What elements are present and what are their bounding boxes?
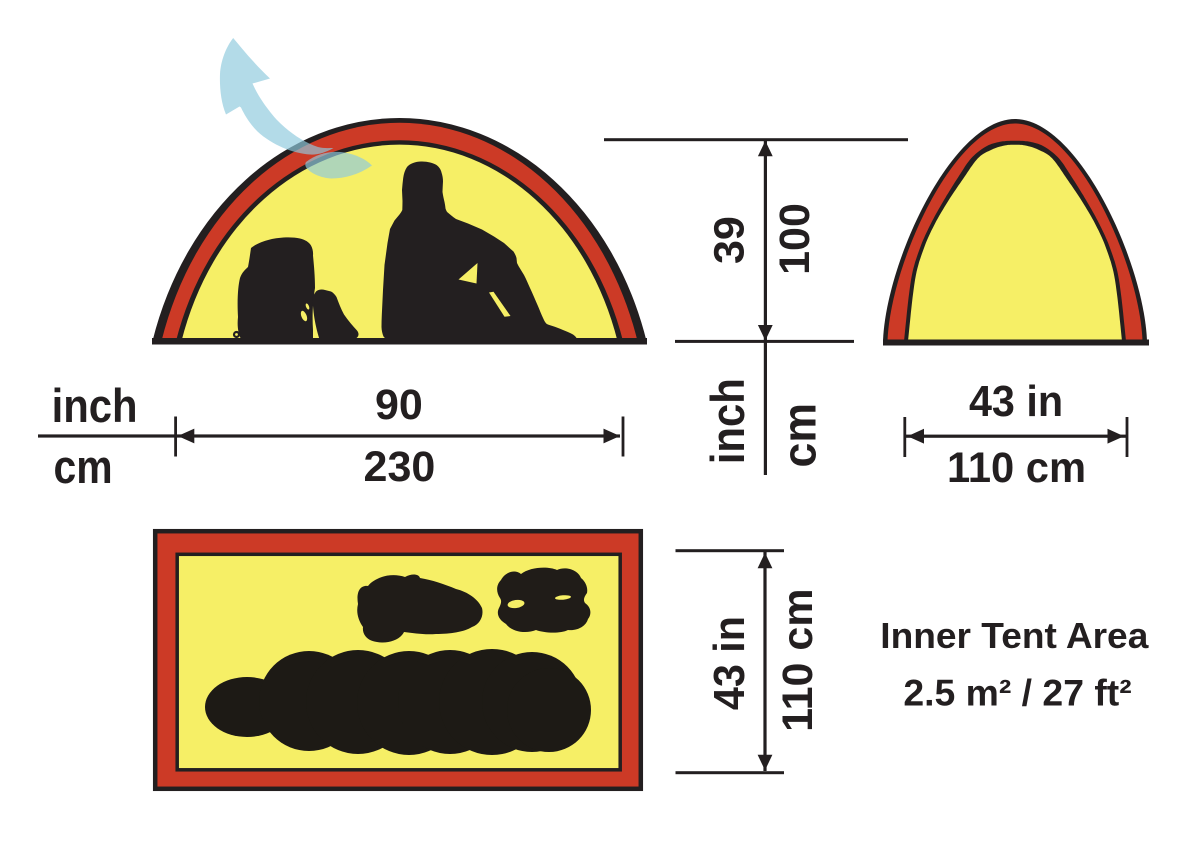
svg-text:43 in: 43 in — [969, 377, 1063, 425]
svg-text:cm: cm — [773, 403, 825, 468]
svg-text:2.5 m² / 27 ft²: 2.5 m² / 27 ft² — [903, 672, 1131, 714]
svg-text:cm: cm — [53, 441, 112, 493]
svg-text:90: 90 — [375, 381, 423, 429]
svg-text:inch: inch — [703, 378, 755, 464]
svg-text:100: 100 — [771, 203, 819, 275]
svg-text:inch: inch — [52, 381, 138, 433]
svg-text:230: 230 — [364, 443, 436, 491]
svg-text:110 cm: 110 cm — [774, 588, 822, 731]
svg-text:110 cm: 110 cm — [947, 443, 1086, 491]
svg-text:Inner Tent Area: Inner Tent Area — [880, 615, 1149, 656]
svg-text:39: 39 — [706, 216, 754, 264]
svg-text:43 in: 43 in — [705, 616, 753, 710]
